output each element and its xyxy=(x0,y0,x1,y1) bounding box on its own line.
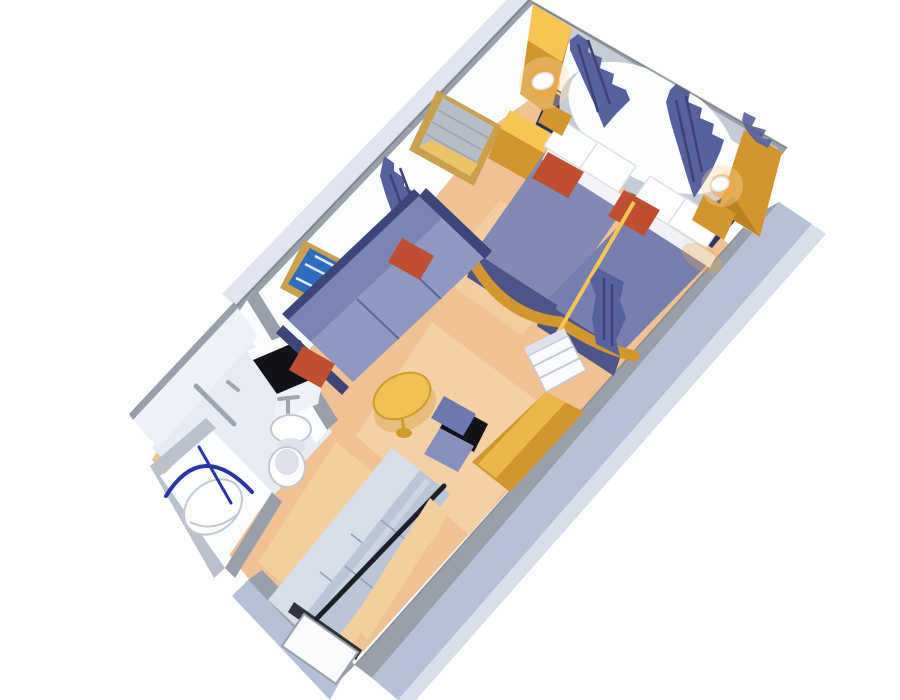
floorplan-canvas: 3D cutaway floor plan of a cruise ship s… xyxy=(0,0,900,700)
coffee-table-base xyxy=(396,428,412,438)
toilet-seat xyxy=(275,449,299,475)
stateroom-render: 3D cutaway floor plan of a cruise ship s… xyxy=(0,0,900,700)
